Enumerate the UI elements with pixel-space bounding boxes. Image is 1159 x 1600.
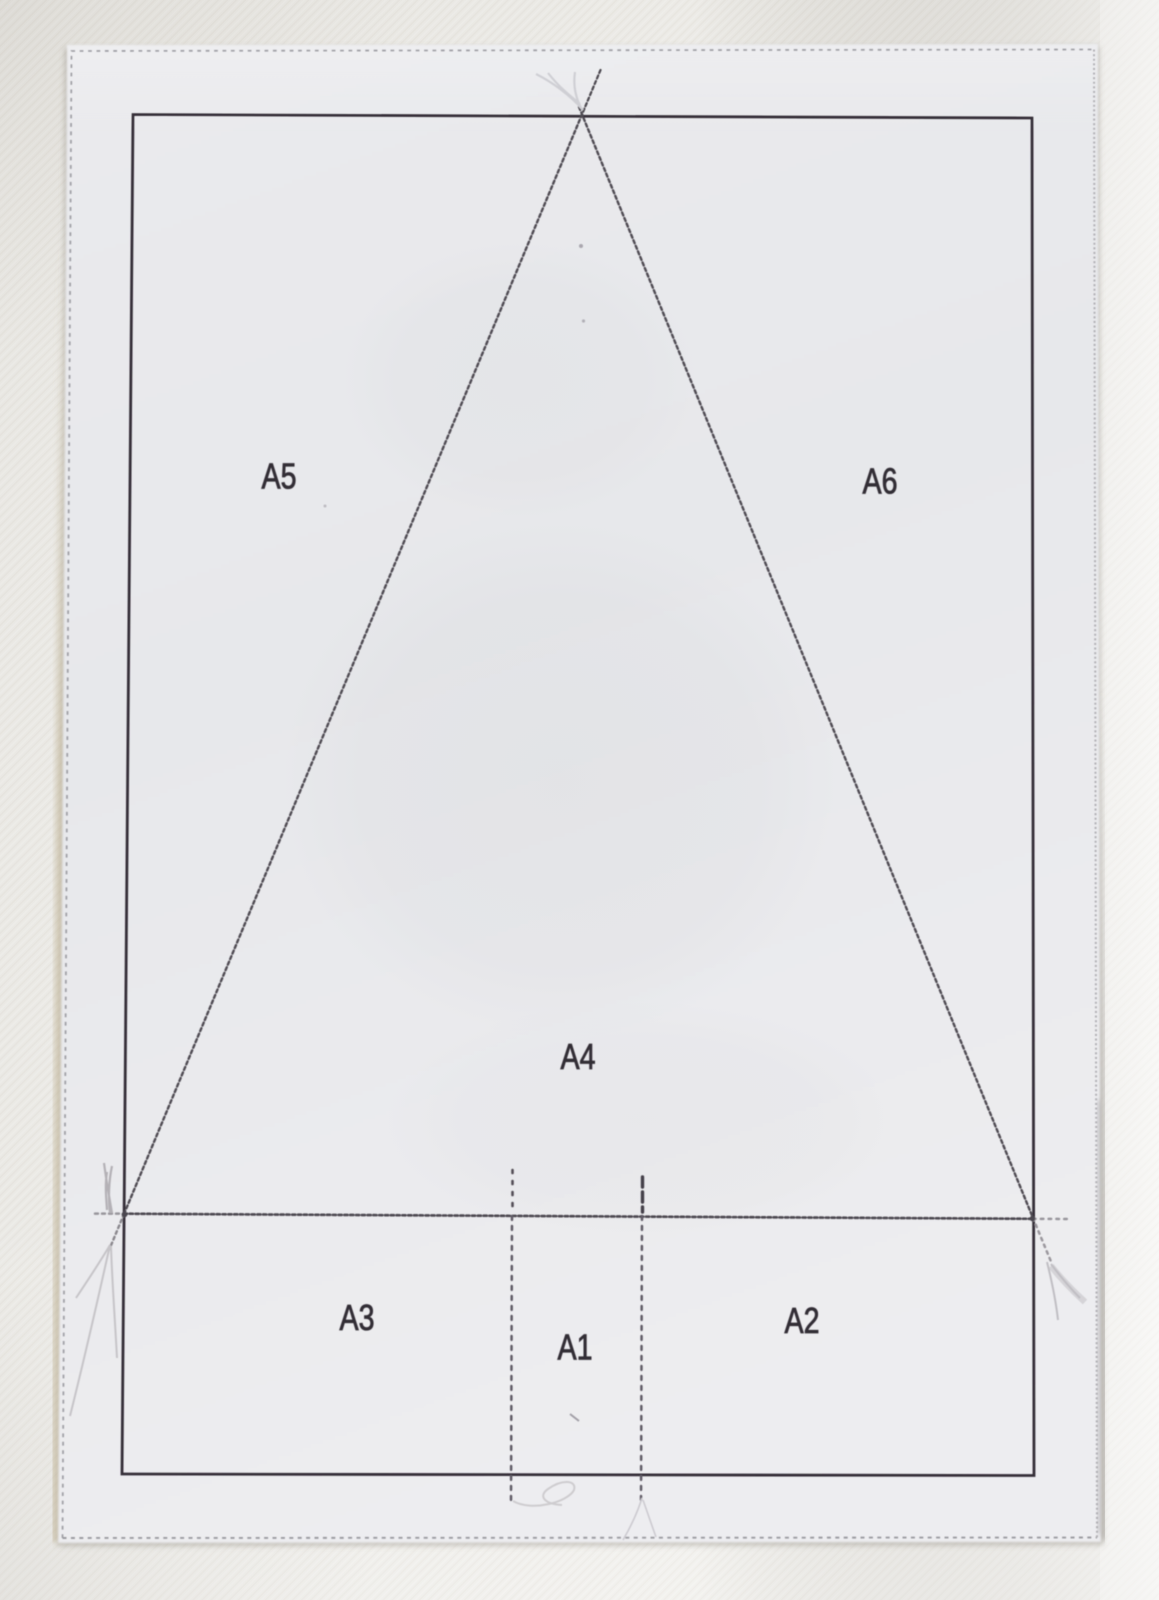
svg-text:A6: A6: [863, 461, 898, 502]
svg-text:A2: A2: [785, 1300, 820, 1341]
svg-text:A5: A5: [262, 456, 297, 497]
svg-text:A1: A1: [558, 1327, 593, 1368]
svg-text:A4: A4: [561, 1036, 596, 1077]
svg-text:A3: A3: [340, 1297, 375, 1338]
